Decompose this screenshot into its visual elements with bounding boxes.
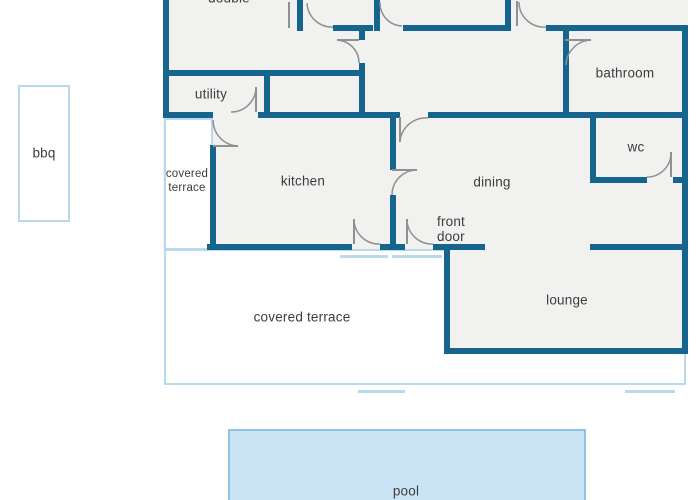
- room-label-utility: utility: [195, 87, 227, 102]
- room-label-double: double: [208, 0, 250, 6]
- door-arc: [647, 153, 671, 177]
- label-covered-terrace-small: covered terrace: [156, 167, 218, 195]
- label-covered-terrace-main: covered terrace: [254, 310, 351, 325]
- door-arc: [307, 3, 333, 27]
- label-front-door: front door: [437, 214, 487, 244]
- door-arc: [354, 220, 380, 244]
- door-arc: [400, 118, 428, 141]
- room-label-bathroom: bathroom: [596, 66, 655, 81]
- room-label-wc: wc: [628, 140, 645, 155]
- door-arc: [566, 40, 591, 65]
- floorplan: double utility bathroom wc kitchen dinin…: [0, 0, 700, 500]
- door-leaves: [213, 1, 671, 244]
- door-arc: [407, 220, 433, 244]
- door-arc: [380, 2, 402, 26]
- door-arc: [392, 170, 417, 195]
- door-arc: [519, 2, 546, 27]
- room-label-kitchen: kitchen: [281, 174, 325, 189]
- room-label-lounge: lounge: [546, 293, 588, 308]
- door-arcs: [213, 2, 671, 244]
- label-pool: pool: [393, 484, 419, 499]
- door-arc: [213, 120, 238, 146]
- door-arc: [231, 88, 256, 112]
- door-arc: [337, 40, 359, 63]
- label-bbq: bbq: [32, 146, 55, 161]
- room-label-dining: dining: [473, 175, 510, 190]
